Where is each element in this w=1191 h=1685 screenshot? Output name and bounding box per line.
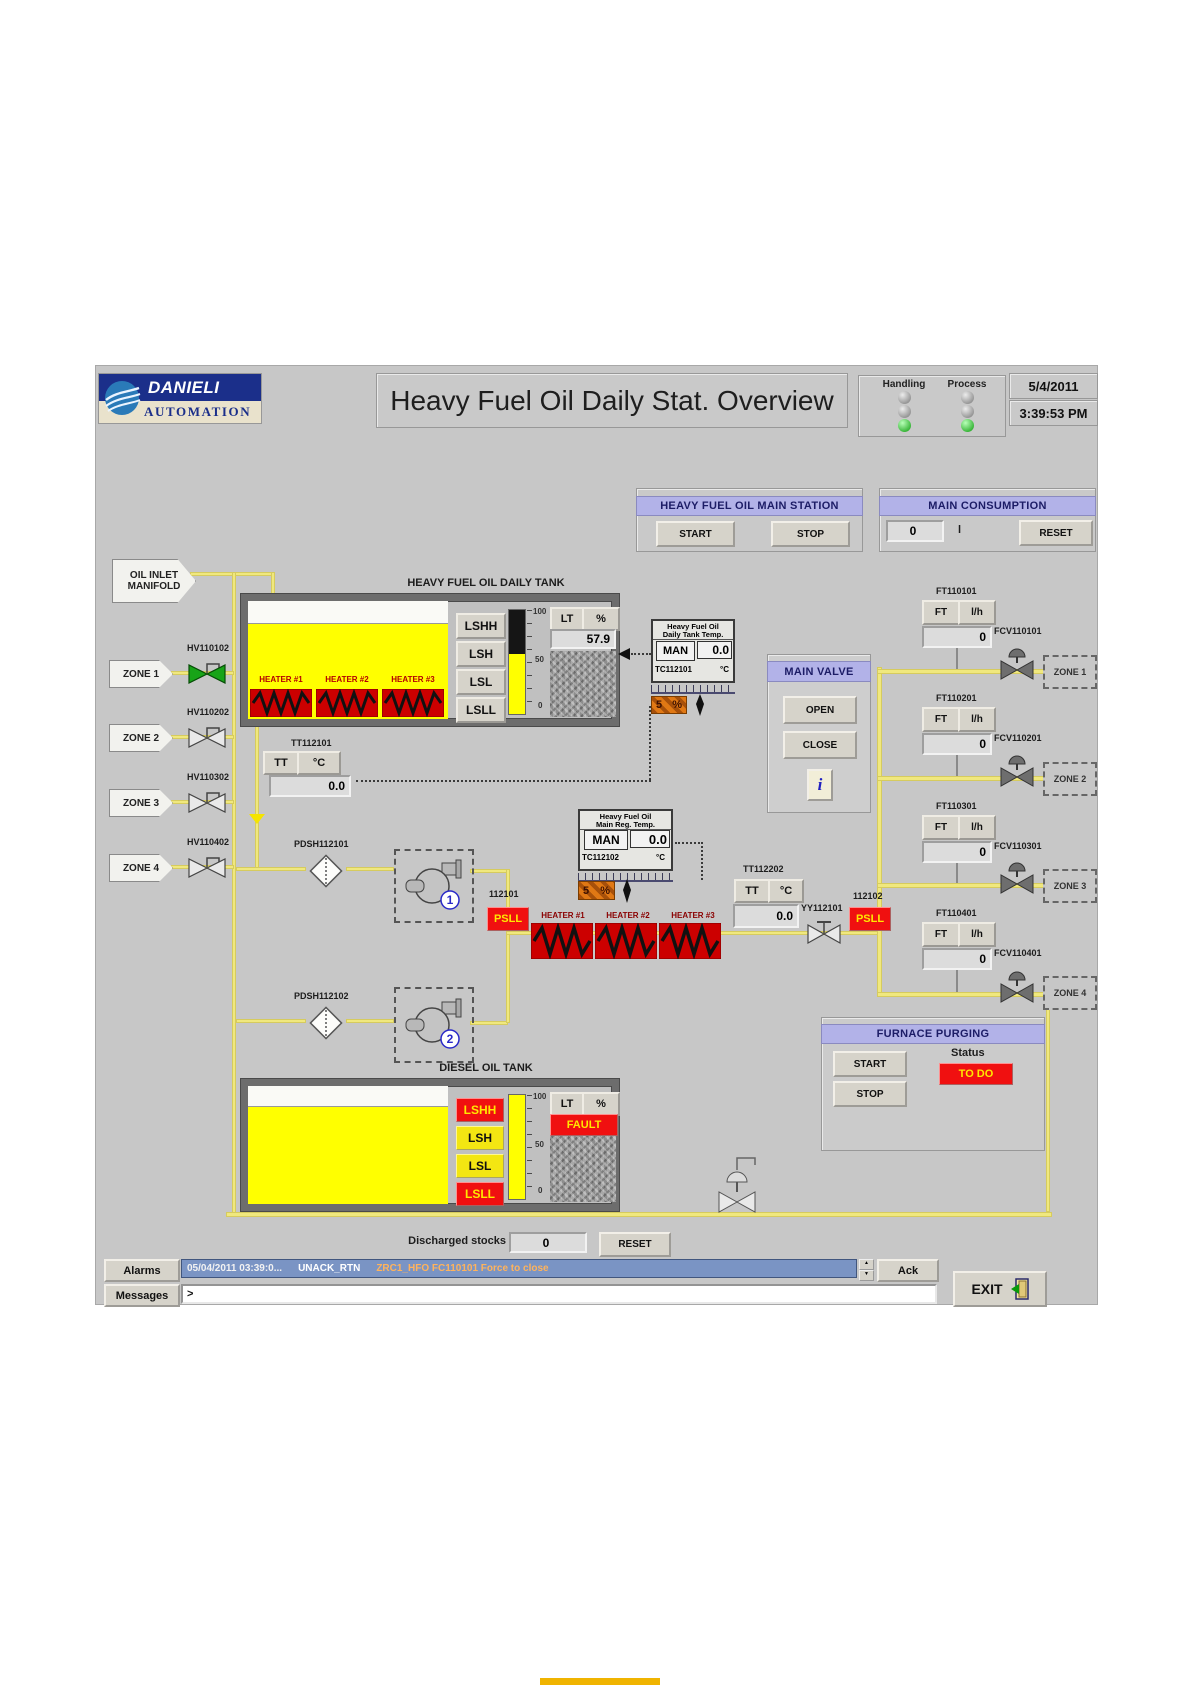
pump2-icon[interactable]: 2: [404, 998, 464, 1050]
handling-lamp-2-icon: [898, 405, 911, 418]
ft110201-unit-cell: l/h: [958, 707, 996, 732]
line-heater2-label: HEATER #2: [597, 911, 659, 920]
diesel-tank-body: [248, 1086, 448, 1204]
daily-heater3-icon: [382, 689, 444, 717]
pdsh112101-label: PDSH112101: [294, 839, 349, 849]
diesel-tank-headspace: [248, 1086, 448, 1107]
diesel-level-ticks: [527, 1095, 532, 1199]
daily-level-bar: [508, 609, 526, 715]
main-valve-info-button[interactable]: i: [807, 769, 833, 801]
info-icon: i: [818, 775, 823, 795]
time-box: 3:39:53 PM: [1009, 400, 1098, 426]
handling-column: Handling: [873, 379, 935, 432]
yy112101-label: YY112101: [801, 903, 843, 913]
fcv110101-valve-icon[interactable]: [999, 647, 1035, 681]
main-consumption-value: 0: [886, 520, 944, 542]
page-title: Heavy Fuel Oil Daily Stat. Overview: [390, 385, 833, 417]
line-heater2-icon: [595, 923, 657, 959]
handling-label: Handling: [873, 379, 935, 390]
daily-heater2-icon: [316, 689, 378, 717]
daily-temp-out-value: 5: [656, 699, 662, 711]
ft110401-unit-cell: l/h: [958, 922, 996, 947]
logo-line2: AUTOMATION: [144, 404, 251, 420]
bottom-accent-bar: [540, 1678, 660, 1685]
fcv110201-valve-icon[interactable]: [999, 754, 1035, 788]
ps112102-psll: PSLL: [849, 907, 891, 931]
daily-temp-title2: Daily Tank Temp.: [653, 631, 733, 640]
tt112202-tt-cell: TT: [734, 879, 770, 903]
reg-temp-signal-v: [701, 842, 703, 880]
line-heater1-icon: [531, 923, 593, 959]
diesel-scale-50: 50: [535, 1140, 544, 1149]
ft110401-dropline: [956, 970, 958, 992]
logo-line1: DANIELI: [148, 378, 220, 398]
daily-tank-label: HEAVY FUEL OIL DAILY TANK: [336, 577, 636, 589]
diesel-tank: LSHH LSH LSL LSLL 100 50 0 LT % FAULT: [241, 1079, 619, 1211]
tt112101-value: 0.0: [269, 775, 351, 797]
daily-lt-cell: LT: [550, 607, 584, 631]
ft110401-ft-cell: FT: [922, 922, 960, 947]
diesel-lsll-switch: LSLL: [456, 1182, 504, 1206]
reg-temp-tag: TC112102: [582, 853, 619, 862]
pipe-tank-inlet-v: [271, 572, 275, 594]
handling-lamp-3-icon: [898, 419, 911, 432]
zone3-left-tag[interactable]: ZONE 3: [109, 789, 173, 817]
tt112202-unit-cell: °C: [768, 879, 804, 903]
pipe-filter2-in: [236, 1019, 306, 1023]
tt112101-tt-cell: TT: [263, 751, 299, 775]
ft110301-ft-cell: FT: [922, 815, 960, 840]
daily-temp-tag: TC112101: [655, 665, 692, 674]
title-box: Heavy Fuel Oil Daily Stat. Overview: [376, 373, 848, 428]
furnace-status-label: Status: [951, 1047, 985, 1059]
reg-temp-unit: °C: [656, 853, 665, 862]
pipe-filter1-out: [346, 867, 394, 871]
alarm-message: ZRC1_HFO FC110101 Force to close: [376, 1263, 548, 1274]
furnace-status-value: TO DO: [939, 1063, 1013, 1085]
daily-level-ticks: [527, 610, 532, 714]
oil-inlet-manifold-tag: OIL INLET MANIFOLD: [112, 559, 196, 603]
alarm-line[interactable]: 05/04/2011 03:39:0... UNACK_RTN ZRC1_HFO…: [181, 1259, 857, 1278]
pdsh112101-filter-icon[interactable]: [306, 851, 346, 891]
pipe-filter1-in: [236, 867, 306, 871]
furnace-stop-button[interactable]: STOP: [833, 1081, 907, 1107]
daily-scale-50: 50: [535, 655, 544, 664]
daily-tank-headspace: [248, 601, 448, 624]
date-box: 5/4/2011: [1009, 373, 1098, 399]
daily-heater3-label: HEATER #3: [382, 675, 444, 684]
hv110202-valve-icon[interactable]: [187, 723, 227, 749]
diesel-fault-box: FAULT: [550, 1114, 618, 1136]
exit-door-icon: [1011, 1278, 1029, 1300]
zone3-right-box[interactable]: ZONE 3: [1043, 869, 1097, 903]
ft110101-unit-cell: l/h: [958, 600, 996, 625]
zone1-left-tag[interactable]: ZONE 1: [109, 660, 173, 688]
ft110201-ft-cell: FT: [922, 707, 960, 732]
pipe-bottom-right-v: [1046, 997, 1050, 1212]
daily-temp-controller[interactable]: Heavy Fuel Oil Daily Tank Temp. MAN 0.0 …: [651, 619, 735, 683]
date-value: 5/4/2011: [1029, 379, 1079, 394]
pipe-left-vertical: [232, 572, 236, 1214]
ft110301-label: FT110301: [936, 801, 977, 811]
hmi-screen: DANIELI AUTOMATION Heavy Fuel Oil Daily …: [0, 0, 1191, 1685]
daily-temp-out-unit: %: [672, 699, 682, 711]
tt112202-value: 0.0: [733, 904, 799, 928]
message-input[interactable]: >: [181, 1284, 937, 1304]
process-column: Process: [937, 379, 997, 432]
tt112101-label: TT112101: [291, 738, 332, 748]
yy112101-valve-icon[interactable]: [806, 917, 842, 945]
manifold-line2: MANIFOLD: [128, 581, 181, 592]
daily-temp-marker-icon: [694, 694, 706, 716]
ft110201-dropline: [956, 755, 958, 776]
handling-lamp-1-icon: [898, 391, 911, 404]
diesel-lsl-switch: LSL: [456, 1154, 504, 1178]
diesel-level-bar: [508, 1094, 526, 1200]
reg-temp-output-gauge: 5 %: [578, 881, 615, 900]
ps112101-label: 112101: [489, 889, 519, 899]
alarm-state: UNACK_RTN: [298, 1263, 360, 1274]
reg-temp-mode[interactable]: MAN: [584, 830, 628, 850]
daily-level-value: 57.9: [550, 629, 616, 649]
link-dash-daily: [631, 653, 651, 655]
discharged-value: 0: [509, 1232, 587, 1253]
pump1-box: 1: [394, 849, 474, 923]
hv110102-label: HV110102: [176, 643, 240, 653]
ft110101-label: FT110101: [936, 586, 977, 596]
reg-temp-marker-icon: [621, 879, 633, 903]
daily-temp-mode[interactable]: MAN: [656, 641, 695, 661]
main-consumption-header: MAIN CONSUMPTION: [879, 496, 1096, 516]
ft110201-value: 0: [922, 733, 992, 755]
discharged-reset-button[interactable]: RESET: [599, 1232, 671, 1257]
manifold-line1: OIL INLET: [130, 570, 178, 581]
ps112101-psll: PSLL: [487, 907, 529, 931]
pump1-number: 1: [447, 893, 454, 907]
reg-temp-signal-h: [675, 842, 703, 844]
pipe-bottom-loop-h: [226, 1212, 1052, 1217]
link-arrow-left-icon: [618, 648, 630, 660]
reg-temp-out-value: 5: [583, 885, 589, 897]
diesel-lt-cell: LT: [550, 1092, 584, 1116]
pump2-number: 2: [447, 1032, 454, 1046]
line-heater3-label: HEATER #3: [662, 911, 724, 920]
hv110402-label: HV110402: [176, 837, 240, 847]
process-lamp-2-icon: [961, 405, 974, 418]
daily-heater2-label: HEATER #2: [316, 675, 378, 684]
globe-icon: [102, 378, 142, 418]
tt112101-signal-v: [649, 706, 651, 780]
zone4-right-box[interactable]: ZONE 4: [1043, 976, 1097, 1010]
furnace-purging-header: FURNACE PURGING: [821, 1024, 1045, 1044]
fcv110401-label: FCV110401: [994, 948, 1042, 958]
pdsh112102-filter-icon[interactable]: [306, 1003, 346, 1043]
ft110101-ft-cell: FT: [922, 600, 960, 625]
ft110401-value: 0: [922, 948, 992, 970]
pump1-icon[interactable]: 1: [404, 859, 464, 911]
tt112101-unit-cell: °C: [297, 751, 341, 775]
time-value: 3:39:53 PM: [1020, 406, 1088, 421]
ft110301-value: 0: [922, 841, 992, 863]
tt112101-signal-h: [356, 780, 651, 782]
daily-heater1-label: HEATER #1: [250, 675, 312, 684]
zone2-right-box[interactable]: ZONE 2: [1043, 762, 1097, 796]
daily-temp-ruler: [651, 685, 735, 694]
ft110301-dropline: [956, 863, 958, 883]
logo: DANIELI AUTOMATION: [98, 373, 262, 424]
message-prompt: >: [187, 1288, 193, 1300]
diesel-tank-texture: [550, 1136, 616, 1202]
main-station-stop-button[interactable]: STOP: [771, 521, 850, 547]
daily-temp-output-gauge: 5 %: [651, 696, 687, 714]
daily-lsh-switch: LSH: [456, 641, 506, 667]
hv110202-label: HV110202: [176, 707, 240, 717]
daily-tank: HEATER #1 HEATER #2 HEATER #3 LSHH LSH L…: [241, 594, 619, 726]
main-valve-header: MAIN VALVE: [767, 661, 871, 682]
daily-lsl-switch: LSL: [456, 669, 506, 695]
fcv110101-label: FCV110101: [994, 626, 1042, 636]
scroll-up-icon[interactable]: ▲: [859, 1259, 874, 1270]
diesel-scale-0: 0: [538, 1186, 542, 1195]
hv110302-valve-icon[interactable]: [187, 788, 227, 814]
zone2-left-tag[interactable]: ZONE 2: [109, 724, 173, 752]
daily-temp-unit: °C: [720, 665, 729, 674]
line-heater3-icon: [659, 923, 721, 959]
diesel-lsh-switch: LSH: [456, 1126, 504, 1150]
fcv110401-valve-icon[interactable]: [999, 970, 1035, 1004]
pipe-filter2-out: [346, 1019, 394, 1023]
pipe-arrow-down2-icon: [249, 814, 265, 824]
ft110101-dropline: [956, 648, 958, 669]
zone4-left-tag[interactable]: ZONE 4: [109, 854, 173, 882]
discharge-valve-icon[interactable]: [715, 1156, 759, 1214]
pump2-box: 2: [394, 987, 474, 1063]
main-valve-open-button[interactable]: OPEN: [783, 696, 857, 724]
daily-scale-0: 0: [538, 701, 542, 710]
daily-tank-body: HEATER #1 HEATER #2 HEATER #3: [248, 601, 448, 719]
reg-temp-controller[interactable]: Heavy Fuel Oil Main Reg. Temp. MAN 0.0 T…: [578, 809, 673, 871]
ft110401-label: FT110401: [936, 908, 977, 918]
diesel-scale-100: 100: [533, 1092, 546, 1101]
line-heater1-label: HEATER #1: [532, 911, 594, 920]
daily-heater1-icon: [250, 689, 312, 717]
exit-label: EXIT: [971, 1281, 1002, 1297]
process-lamp-1-icon: [961, 391, 974, 404]
daily-lshh-switch: LSHH: [456, 613, 506, 639]
pipe-pump1-out: [470, 869, 508, 873]
diesel-pct-cell: %: [582, 1092, 620, 1116]
daily-scale-100: 100: [533, 607, 546, 616]
alarm-scroll-spinner[interactable]: ▲ ▼: [859, 1259, 874, 1278]
ft110101-value: 0: [922, 626, 992, 648]
alarms-button[interactable]: Alarms: [104, 1259, 180, 1282]
ack-button[interactable]: Ack: [877, 1259, 939, 1282]
main-valve-close-button[interactable]: CLOSE: [783, 731, 857, 759]
diesel-tank-label: DIESEL OIL TANK: [336, 1062, 636, 1074]
process-lamp-3-icon: [961, 419, 974, 432]
pipe-tank-outlet-v: [255, 726, 259, 870]
daily-tank-texture: [550, 651, 616, 717]
fcv110301-valve-icon[interactable]: [999, 861, 1035, 895]
main-station-header: HEAVY FUEL OIL MAIN STATION: [636, 496, 863, 516]
ps112102-label: 112102: [853, 891, 883, 901]
scroll-down-icon[interactable]: ▼: [859, 1270, 874, 1281]
daily-pct-cell: %: [582, 607, 620, 631]
diesel-lshh-switch: LSHH: [456, 1098, 504, 1122]
fcv110201-label: FCV110201: [994, 733, 1042, 743]
fcv110301-label: FCV110301: [994, 841, 1042, 851]
furnace-start-button[interactable]: START: [833, 1051, 907, 1077]
main-station-start-button[interactable]: START: [656, 521, 735, 547]
hv110102-valve-icon[interactable]: [187, 659, 227, 685]
hv110402-valve-icon[interactable]: [187, 853, 227, 879]
process-label: Process: [937, 379, 997, 390]
reg-temp-title2: Main Reg. Temp.: [580, 821, 671, 830]
pipe-right-vertical: [877, 667, 882, 997]
reg-temp-out-unit: %: [600, 885, 610, 897]
main-consumption-unit: l: [958, 524, 961, 536]
status-lights-box: Handling Process: [858, 375, 1006, 437]
alarm-time: 05/04/2011 03:39:0...: [187, 1263, 282, 1274]
messages-button[interactable]: Messages: [104, 1284, 180, 1307]
hmi-panel: DANIELI AUTOMATION Heavy Fuel Oil Daily …: [95, 365, 1098, 1305]
ft110201-label: FT110201: [936, 693, 977, 703]
pipe-pump2-out: [470, 1021, 508, 1025]
daily-temp-value: 0.0: [697, 641, 732, 659]
tt112202-label: TT112202: [743, 864, 784, 874]
pdsh112102-label: PDSH112102: [294, 991, 349, 1001]
ft110301-unit-cell: l/h: [958, 815, 996, 840]
discharged-label: Discharged stocks: [396, 1235, 506, 1247]
daily-lsll-switch: LSLL: [456, 697, 506, 723]
main-consumption-reset-button[interactable]: RESET: [1019, 520, 1093, 546]
hv110302-label: HV110302: [176, 772, 240, 782]
reg-temp-value: 0.0: [630, 830, 670, 848]
zone1-right-box[interactable]: ZONE 1: [1043, 655, 1097, 689]
exit-button[interactable]: EXIT: [953, 1271, 1047, 1307]
